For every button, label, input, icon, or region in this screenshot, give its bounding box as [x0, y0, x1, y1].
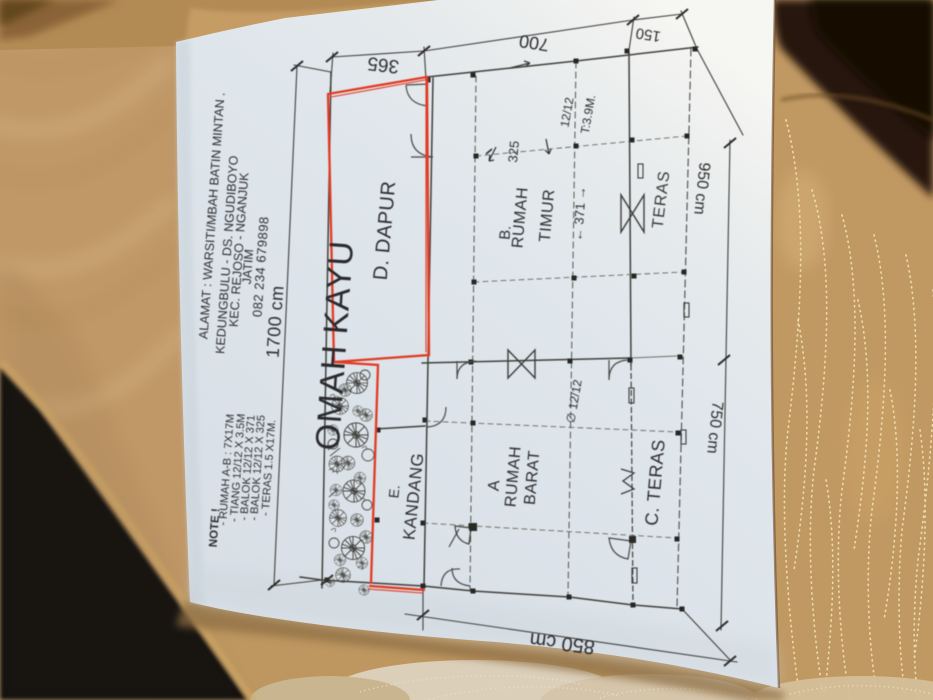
svg-text:325: 325 [505, 140, 522, 163]
svg-text:365: 365 [366, 52, 400, 77]
svg-text:A: A [486, 479, 504, 491]
svg-text:E.: E. [385, 484, 402, 499]
